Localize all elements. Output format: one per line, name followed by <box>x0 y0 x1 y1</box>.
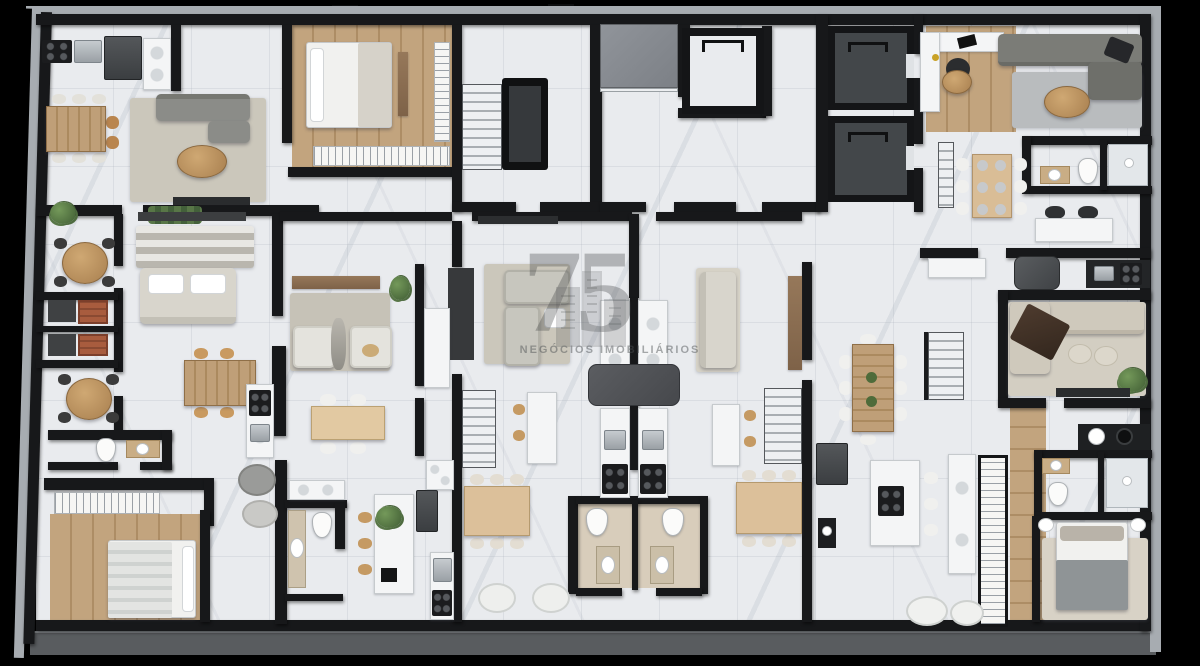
tv-console <box>138 212 246 221</box>
wall-segment <box>700 496 708 594</box>
pouf <box>1094 346 1118 366</box>
tv-console <box>173 197 250 205</box>
wall-segment <box>335 503 345 549</box>
bed-bench <box>398 52 408 116</box>
dining-table <box>311 406 385 440</box>
dining-chairs <box>52 94 66 104</box>
wall-segment <box>674 202 736 212</box>
lounge-chair <box>238 464 276 496</box>
wall-segment <box>998 398 1046 408</box>
sofa-cushion <box>544 308 566 328</box>
stair-shaft-inner <box>509 86 541 162</box>
wardrobe <box>54 492 160 514</box>
wall-segment <box>920 248 978 258</box>
bed-blanket <box>358 43 391 127</box>
bed-pillows <box>182 546 194 612</box>
wall-segment <box>998 290 1151 300</box>
coffee-table <box>177 145 227 178</box>
desk-lamp <box>932 54 939 61</box>
dinner-plates <box>977 160 988 171</box>
round-washbasin <box>1088 428 1105 445</box>
wall-segment <box>114 396 123 434</box>
plant <box>50 202 76 224</box>
fridge <box>104 36 142 80</box>
sofa-modular <box>504 306 540 366</box>
wall-segment <box>272 214 283 316</box>
wall-segment <box>816 14 828 212</box>
kitchen-island <box>1035 218 1113 242</box>
kitchen-sink-counter <box>143 38 171 90</box>
elevator-door <box>906 146 914 170</box>
fridge <box>816 443 848 485</box>
lounge-chair <box>532 583 570 613</box>
shower-drain <box>1124 158 1134 168</box>
concrete-landing <box>600 24 678 88</box>
cooktop <box>878 486 904 516</box>
wall-segment <box>36 326 118 332</box>
washbasin <box>601 556 615 574</box>
wall-segment <box>998 290 1008 404</box>
wardrobe <box>978 455 1008 627</box>
wall-segment <box>600 202 646 212</box>
dish-cabinet <box>426 460 454 490</box>
kitchen-sink <box>1094 266 1114 281</box>
wall-segment <box>200 510 210 622</box>
kitchen-island <box>527 392 557 464</box>
wall-segment <box>1098 452 1104 514</box>
wall-segment <box>282 25 292 143</box>
dining-table <box>46 106 106 152</box>
dining-chairs <box>320 394 336 406</box>
stairs <box>764 388 802 464</box>
fridge <box>416 490 438 532</box>
dining-chairs <box>894 355 907 369</box>
kitchen-island <box>712 404 740 466</box>
lounge-chair <box>478 583 516 613</box>
balcony-chairs <box>54 238 67 249</box>
kitchen-sink <box>642 430 664 450</box>
wall-segment <box>272 346 286 436</box>
cooktop <box>640 464 666 494</box>
pouf <box>1068 344 1092 364</box>
wall-segment <box>452 202 516 212</box>
plant <box>376 506 402 528</box>
cooktop <box>432 590 452 616</box>
wall-segment <box>1064 398 1151 408</box>
wall-segment <box>656 212 802 221</box>
wall-segment <box>36 292 118 300</box>
dining-chairs <box>194 407 208 418</box>
stairs <box>462 390 496 468</box>
rug-striped <box>136 226 254 268</box>
bar-stools <box>513 404 525 415</box>
kitchen-stove <box>42 40 72 63</box>
side-tray <box>362 344 379 357</box>
accent-chairs <box>106 116 119 129</box>
dining-chairs <box>470 474 484 485</box>
sofa <box>293 326 335 368</box>
balcony-table <box>66 378 112 420</box>
tv-console <box>478 216 558 224</box>
stairs <box>928 332 964 400</box>
slab-edge-right <box>1150 6 1161 652</box>
bed-blanket <box>1056 560 1128 610</box>
wall-segment <box>36 205 122 216</box>
wall-segment <box>656 588 702 596</box>
pantry-cabinet <box>448 268 474 360</box>
wall-segment <box>540 202 602 212</box>
cooktop <box>249 390 271 416</box>
wall-segment <box>1034 450 1152 458</box>
bbq-grill <box>1014 256 1060 290</box>
kitchen-sink <box>250 424 270 442</box>
washbasin <box>1048 169 1061 181</box>
wall-segment <box>452 221 462 267</box>
washbasin <box>290 538 304 558</box>
wall-segment <box>288 167 456 177</box>
elevator-door <box>906 54 914 78</box>
wall-segment <box>280 212 452 221</box>
sofa <box>700 272 736 368</box>
elevator-handrail <box>848 42 888 52</box>
wall-segment <box>802 262 812 360</box>
wall-segment <box>576 588 622 596</box>
kitchen-counter-steel <box>74 40 102 63</box>
washbasin <box>1050 460 1062 471</box>
tv-console-wood <box>292 276 380 289</box>
bar-stools <box>744 410 756 421</box>
nightstand <box>1038 518 1054 532</box>
sofa-chaise <box>208 121 250 143</box>
kitchen-sink <box>433 558 452 582</box>
dining-chairs <box>320 442 336 454</box>
dining-chairs <box>956 158 969 171</box>
wall-segment <box>162 430 172 470</box>
elevator <box>828 116 914 202</box>
serving-tray <box>381 568 397 582</box>
tv-console-wood <box>788 276 802 370</box>
wardrobe <box>434 42 450 142</box>
round-table <box>950 600 984 626</box>
bbq-counter <box>48 334 76 356</box>
tv-console <box>1056 388 1130 397</box>
wall-segment <box>285 594 343 601</box>
landing-rail <box>600 88 678 92</box>
wall-segment <box>568 496 578 594</box>
wardrobe <box>313 146 450 166</box>
cooktop <box>1120 263 1142 285</box>
wall-segment <box>762 202 820 212</box>
wall-segment <box>914 168 923 212</box>
sofa-chaise <box>1088 62 1142 100</box>
bar-stools <box>924 472 938 484</box>
bbq-grill-brick <box>78 300 108 324</box>
cooktop <box>602 464 628 494</box>
bar-stools <box>358 512 372 523</box>
dining-table <box>852 344 894 432</box>
dining-chairs <box>1014 158 1027 171</box>
kitchen-counter <box>928 258 986 278</box>
sofa-cushions <box>190 274 226 294</box>
floor-plan-render: 75 NEGÓCIOS IMOBILIÁRIOS <box>0 0 1200 666</box>
bbq-grill-brick <box>78 334 108 356</box>
elevator-handrail <box>848 132 888 142</box>
side-table <box>942 70 972 94</box>
stairs <box>938 142 954 208</box>
wall-segment <box>415 398 424 456</box>
dining-chairs <box>742 536 756 547</box>
plant <box>390 276 410 300</box>
wall-segment <box>1034 450 1042 514</box>
kitchen-counter <box>289 480 345 500</box>
wall-segment <box>114 214 123 266</box>
dining-table <box>464 486 530 536</box>
round-table <box>906 596 948 626</box>
dining-chairs <box>52 153 66 163</box>
dining-chairs <box>470 538 484 549</box>
sofa <box>156 94 250 121</box>
shower-drain <box>1122 476 1132 486</box>
bed-pillows <box>1060 526 1124 541</box>
kitchen-counter <box>424 308 450 388</box>
wall-segment <box>1032 516 1040 622</box>
dining-chairs <box>194 348 208 359</box>
nightstand <box>1130 518 1146 532</box>
coffee-table <box>1044 86 1090 118</box>
kitchen-sink <box>604 430 626 450</box>
washbasin <box>655 556 669 574</box>
elevator <box>828 26 914 110</box>
elevator-handrail <box>702 40 744 52</box>
wall-segment <box>48 462 118 470</box>
wall-top <box>36 14 1148 25</box>
balcony-chairs <box>58 374 71 385</box>
wall-segment <box>632 500 638 590</box>
stair-rail <box>924 332 928 400</box>
sofa-modular <box>504 270 570 304</box>
wall-segment <box>629 214 639 298</box>
bed-blanket <box>108 542 172 618</box>
balcony-table <box>62 242 108 284</box>
desk-return <box>920 32 940 112</box>
wall-segment <box>415 264 424 386</box>
dining-table <box>736 482 802 534</box>
wall-segment <box>171 25 181 91</box>
bed-pillows <box>310 48 324 122</box>
wall-segment <box>36 360 118 368</box>
kitchen-counter <box>948 454 976 574</box>
dining-chairs <box>742 470 756 481</box>
floor-lamp-drape <box>331 318 346 370</box>
wall-segment <box>1030 186 1152 194</box>
slab-strip-bottom <box>30 631 1156 655</box>
washer-drum <box>1116 428 1133 445</box>
dining-chairs <box>839 355 852 369</box>
lounge-chair <box>242 500 278 528</box>
sofa-cushions <box>148 274 184 294</box>
dinner-plates <box>866 372 877 383</box>
wall-segment <box>44 478 206 490</box>
stairs <box>462 84 502 170</box>
kitchen-table-dark <box>588 364 680 406</box>
bbq-counter <box>48 300 76 322</box>
wall-segment <box>1100 140 1107 190</box>
washbasin <box>136 443 149 455</box>
wall-segment <box>802 380 812 622</box>
bar-sink <box>822 526 832 536</box>
wall-segment <box>452 25 462 210</box>
